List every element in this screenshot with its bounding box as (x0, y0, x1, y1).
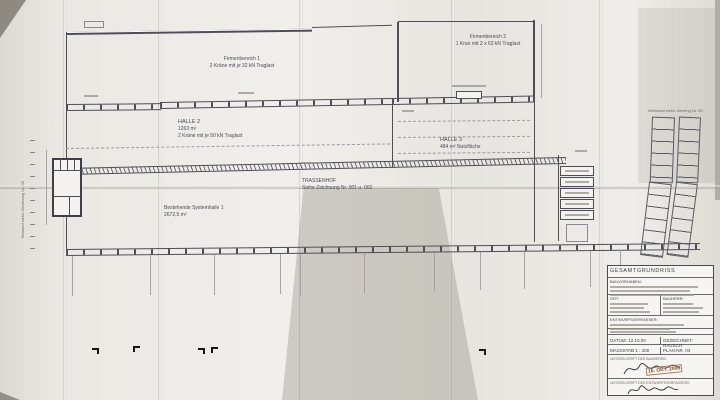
massstab-value: 200 (642, 348, 650, 353)
label-line: 2 Kräne mit je 50 kN Traglast (178, 133, 310, 140)
wall-line (397, 22, 399, 102)
registration-mark (198, 348, 205, 354)
wall-line (398, 21, 534, 22)
gate-opening (456, 91, 482, 99)
stair-outline (566, 224, 588, 242)
annex-partition (60, 159, 61, 170)
annex-partition (53, 170, 81, 171)
room-cell (560, 177, 594, 187)
dimension-drop-line (214, 255, 215, 295)
registration-mark (92, 348, 99, 354)
datum-value: 12.10.00 (628, 338, 646, 343)
dimension-drop-line (300, 254, 301, 296)
plan-nr-cell: PLAN-NR. 03 (660, 347, 713, 354)
dimension-smudge (402, 110, 414, 112)
label-firmenbereich-1: Firmenbereich 1 2 Kräne mit je 32 kN Tra… (176, 56, 308, 69)
massstab-cell: MASSSTAB 1 : 200 (608, 347, 660, 354)
label-line: HALLE 3 (440, 137, 530, 144)
label-halle-2: HALLE 2 1263 m² 2 Kräne mit je 50 kN Tra… (178, 119, 310, 139)
dimension-drop-line (150, 255, 151, 295)
plan-nr-label: PLAN-NR. (663, 348, 684, 353)
dimension-smudge (452, 85, 486, 87)
title-block-bauvorhaben: BAUVORHABEN: (608, 278, 713, 295)
label-line: Siehe Zeichnung Nr. 001 u. 002 (302, 185, 406, 192)
parking-strip (650, 117, 675, 184)
dimension-label-box (84, 21, 104, 28)
entwurfsverfasser-label: ENTWURFSVERFASSER: (610, 317, 658, 322)
label-trassenhof: TRASSENHOF Siehe Zeichnung Nr. 001 u. 00… (302, 178, 406, 191)
dimension-chain-ticks (30, 140, 35, 252)
datum-label: DATUM: (610, 338, 627, 343)
dimension-drop-line (480, 252, 481, 290)
room-cell (560, 199, 594, 209)
room-cell (560, 166, 594, 176)
bauherr-cell: BAUHERR: (660, 295, 713, 315)
dimension-chain (46, 150, 47, 225)
dimension-drop-line (434, 253, 435, 291)
registration-mark (479, 349, 486, 355)
label-line: 1 Kran mit 2 x 63 kN Traglast (428, 41, 548, 48)
fold-crease (599, 0, 603, 400)
label-halle-3: HALLE 3 484 m² Nutzfläche (440, 137, 530, 151)
wall-line (558, 155, 559, 241)
dimension-drop-line (590, 251, 591, 287)
dimension-smudge (238, 92, 254, 94)
annex-partition (53, 196, 81, 197)
dimension-smudge (84, 95, 98, 97)
parking-strip (676, 117, 701, 184)
label-line: 2672,5 m² (164, 212, 264, 219)
annex-partition (69, 196, 70, 215)
wall-line (533, 20, 535, 102)
verfasser-signature (626, 382, 680, 397)
plan-nr-value: 03 (685, 348, 690, 353)
dimension-smudge (300, 162, 314, 164)
label-firmenbereich-2: Firmenbereich 2 1 Kran mit 2 x 63 kN Tra… (428, 34, 548, 47)
column-wall (66, 103, 161, 111)
registration-mark (211, 347, 218, 353)
bauherr-label: BAUHERR: (663, 296, 684, 301)
signature-verfasser-row: UNTERSCHRIFT DES ENTWURFSVERFASSERS (608, 379, 713, 395)
left-margin-note: Bestand siehe Zeichnung Nr. 06 (20, 181, 25, 238)
right-margin-note: Werkstatt siehe Zeichng Nr. 05 (648, 108, 718, 113)
fold-crease (158, 0, 162, 400)
title-block-massstab-row: MASSSTAB 1 : 200 PLAN-NR. 03 (608, 345, 713, 355)
label-line: 2 Kräne mit je 32 kN Traglast (176, 63, 308, 70)
dimension-drop-line (280, 254, 281, 294)
dimension-smudge (575, 150, 587, 152)
dimension-drop-line (72, 256, 73, 296)
annex-partition (74, 159, 75, 170)
title-block: GESAMTGRUNDRISS BAUVORHABEN: ORT: BAUHER… (607, 265, 714, 396)
title-block-datum-row: DATUM: 12.10.00 GEZEICHNET: RAUSCH (608, 335, 713, 345)
label-systemhalle: Bestehende Systemhalle 1 2672,5 m² (164, 205, 264, 218)
annex-partition (67, 159, 68, 170)
label-line: 484 m² Nutzfläche (440, 144, 530, 151)
label-line: HALLE 2 (178, 119, 310, 126)
title-block-entwurfsverfasser: ENTWURFSVERFASSER: (608, 316, 713, 329)
title-block-ort-bauherr: ORT: BAUHERR: (608, 295, 713, 316)
registration-mark (133, 346, 140, 352)
scanned-plan-sheet: Werkstatt siehe Zeichng Nr. 05 Firmenber… (0, 0, 720, 400)
massstab-label: MASSSTAB 1 : (610, 348, 640, 353)
bauvorhaben-label: BAUVORHABEN: (610, 279, 642, 284)
datum-cell: DATUM: 12.10.00 (608, 337, 660, 344)
room-cell (560, 188, 594, 198)
title-block-title: GESAMTGRUNDRISS (608, 266, 713, 278)
dimension-drop-line (524, 252, 525, 289)
signature-bauherr-row: UNTERSCHRIFT DES BAUHERRN 16. OKT. 2000 (608, 355, 713, 379)
dimension-drop-line (364, 253, 365, 293)
gezeichnet-cell: GEZEICHNET: RAUSCH (660, 337, 713, 344)
fold-crease (451, 0, 455, 400)
ort-cell: ORT: (608, 295, 660, 315)
wall-line (534, 100, 535, 242)
wall-line (392, 100, 393, 168)
room-cell (560, 210, 594, 220)
ort-label: ORT: (610, 296, 619, 301)
